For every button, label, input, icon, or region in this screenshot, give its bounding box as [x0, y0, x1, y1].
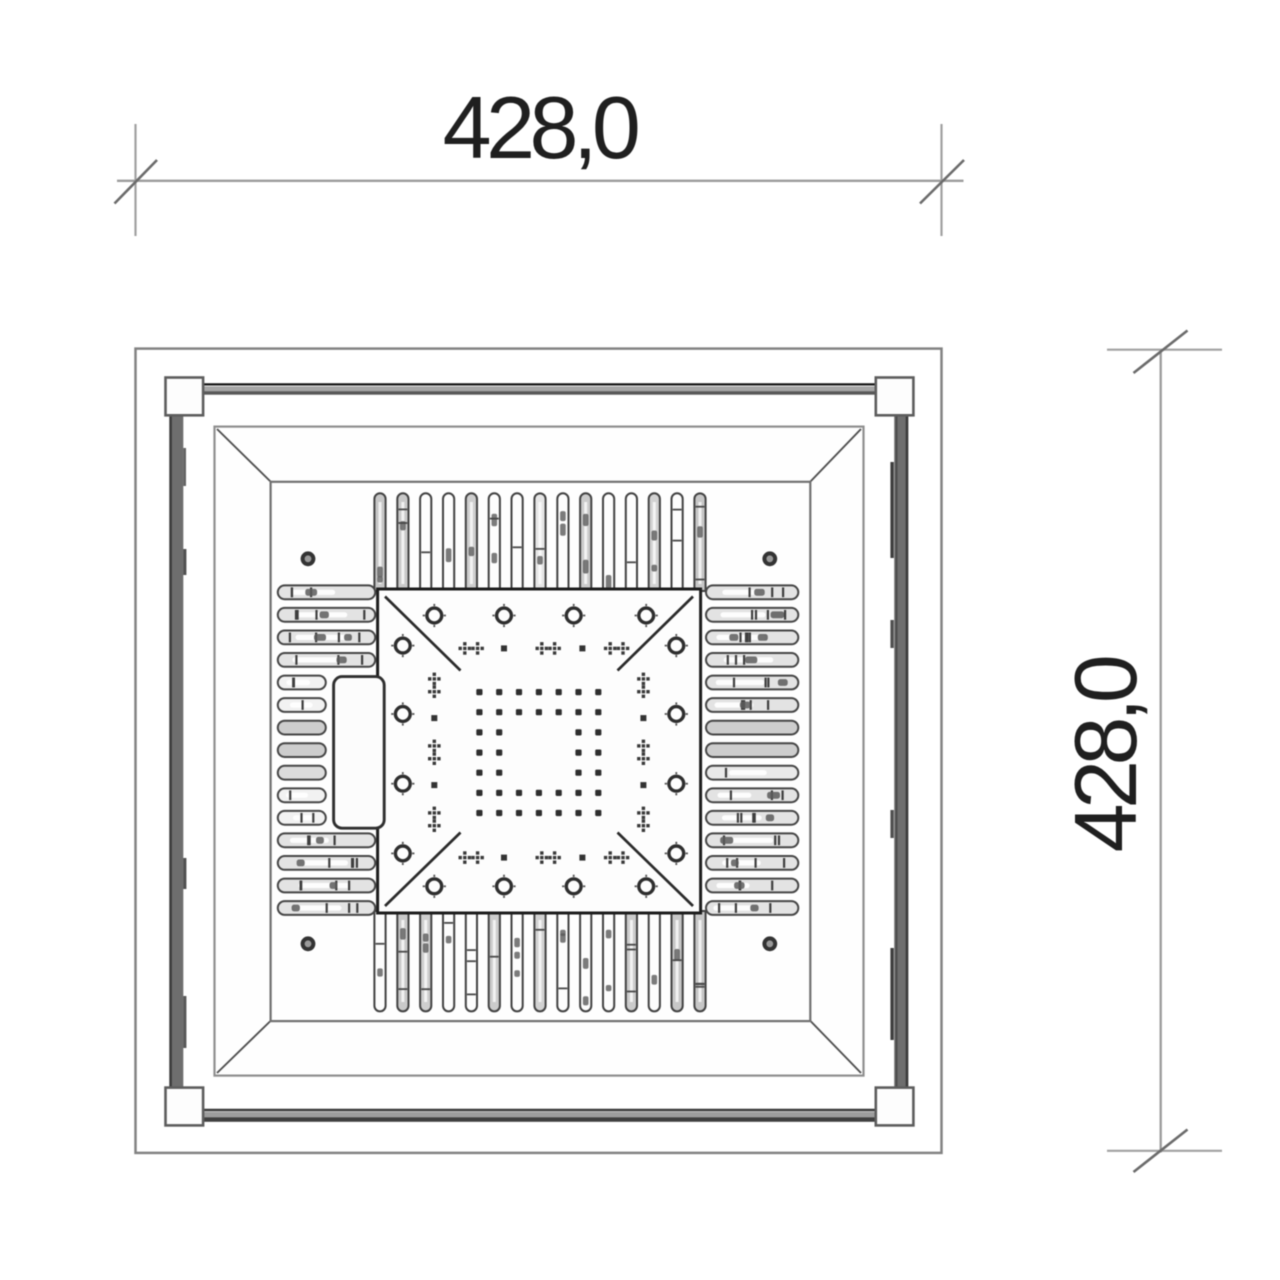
svg-text:428,0: 428,0 [1056, 657, 1155, 852]
svg-text:428,0: 428,0 [443, 78, 638, 177]
